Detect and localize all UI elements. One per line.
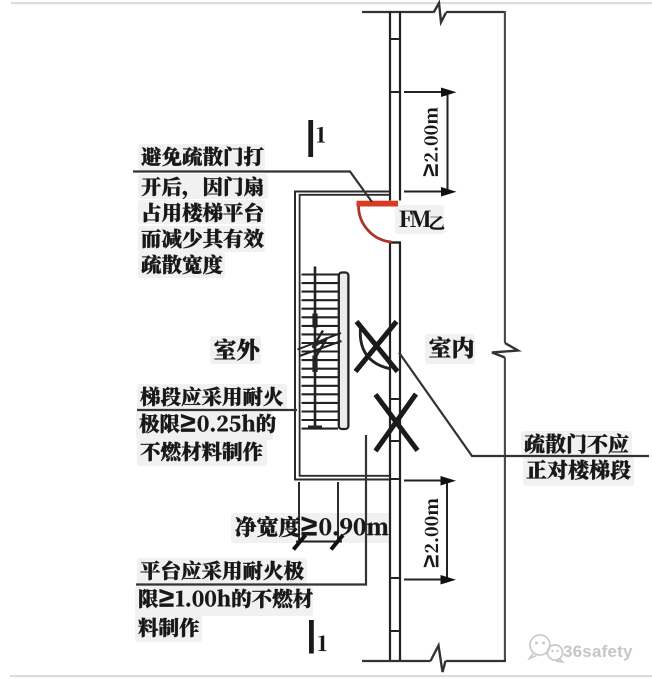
svg-text:36safety: 36safety bbox=[563, 642, 633, 661]
